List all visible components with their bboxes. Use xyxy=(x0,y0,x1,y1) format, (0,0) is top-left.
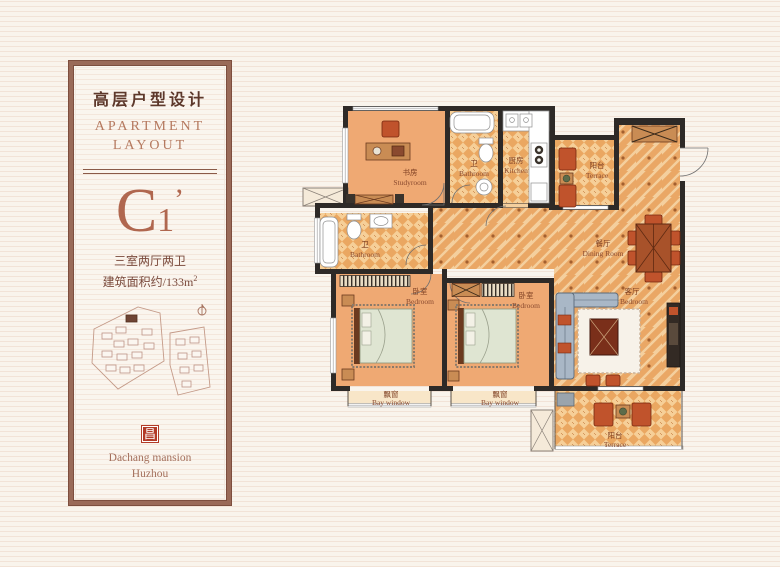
north-arrow-icon xyxy=(198,304,206,315)
label-bedroom2-en: Bedroom xyxy=(512,301,540,310)
kitchen-opening xyxy=(503,204,528,208)
title-english-line2: LAYOUT xyxy=(74,136,226,155)
window-bedroom1-left xyxy=(331,318,337,373)
bed-icon xyxy=(456,305,518,367)
label-bedroom1-en: Bedroom xyxy=(406,297,434,306)
living-terrace-door xyxy=(598,387,643,390)
title-english: APARTMENT LAYOUT xyxy=(74,117,226,155)
label-bath2-en: Bathroom xyxy=(350,250,380,259)
label-study-en: Studyroom xyxy=(393,178,427,187)
terrace-chair-icon xyxy=(632,403,651,426)
developer-name-line1: Dachang mansion xyxy=(109,450,192,466)
floorplan: 书房 Studyroom 卫 Bathroom 厨房 Kitchen 阳台 Te… xyxy=(298,93,713,468)
spec-area-sup: 2 xyxy=(193,274,197,283)
label-kitchen-en: Kitchen xyxy=(504,166,528,175)
washer-icon xyxy=(557,393,574,406)
siteplan-sketch xyxy=(84,299,216,419)
page: 高层户型设计 APARTMENT LAYOUT C1’ 三室两厅两卫 建筑面积约… xyxy=(0,0,780,567)
label-bath1-cn: 卫 xyxy=(470,159,478,168)
label-bedroom1-cn: 卧室 xyxy=(413,286,428,296)
unit-prime: ’ xyxy=(174,185,184,215)
label-bath2-cn: 卫 xyxy=(361,240,369,249)
door-entry xyxy=(680,148,708,176)
window-study-top xyxy=(353,107,438,110)
sink-icon xyxy=(476,179,492,195)
label-bay1-en: Bay window xyxy=(372,398,411,407)
terrace-chair-icon xyxy=(559,148,576,170)
label-study-cn: 书房 xyxy=(403,167,418,177)
wardrobe-icon xyxy=(482,284,514,297)
unit-spec: 三室两厅两卫 建筑面积约/133m2 xyxy=(103,252,198,291)
fridge-icon xyxy=(531,183,547,201)
spec-area-text: 建筑面积约/133m xyxy=(103,275,194,289)
entry-cabinet xyxy=(632,126,677,142)
panel-header: 高层户型设计 APARTMENT LAYOUT xyxy=(74,66,226,155)
developer-logo: 昌 xyxy=(141,425,159,443)
terrace-chair-icon xyxy=(559,185,576,207)
label-terrace1-cn: 阳台 xyxy=(590,160,605,170)
spec-rooms: 三室两厅两卫 xyxy=(103,252,198,270)
unit-type-label: C1’ xyxy=(116,180,184,242)
developer-name: Dachang mansion Huzhou xyxy=(109,450,192,482)
label-bath1-en: Bathroom xyxy=(459,169,489,178)
ac-platform-bottom xyxy=(531,410,553,451)
label-terrace1-en: Terrace xyxy=(586,171,609,180)
label-living-cn: 客厅 xyxy=(625,286,640,296)
spec-area: 建筑面积约/133m2 xyxy=(103,270,198,291)
ottoman-icon xyxy=(606,375,620,386)
nightstand-icon xyxy=(448,371,459,381)
floor-corridor xyxy=(433,208,554,269)
window-bath2-left xyxy=(315,218,321,263)
armchair-icon xyxy=(382,121,399,137)
highlighted-building xyxy=(126,315,137,322)
coffee-table-icon xyxy=(590,319,618,355)
title-chinese: 高层户型设计 xyxy=(74,86,226,110)
label-terrace2-en: Terrace xyxy=(604,440,627,449)
label-living-en: Bedroom xyxy=(620,297,648,306)
developer-city: Huzhou xyxy=(109,466,192,482)
label-dining-en: Dining Room xyxy=(582,249,623,258)
label-terrace2-cn: 阳台 xyxy=(608,430,623,440)
tv-cabinet-icon xyxy=(667,303,680,367)
toilet-icon xyxy=(347,214,361,239)
terrace-chair-icon xyxy=(594,403,613,426)
toilet-icon xyxy=(479,138,493,162)
unit-subscript: 1 xyxy=(157,204,174,238)
label-bay2-en: Bay window xyxy=(481,398,520,407)
speaker-icon xyxy=(346,194,355,203)
speaker-icon xyxy=(395,194,404,203)
bed-icon xyxy=(352,305,414,367)
window-study-left xyxy=(343,128,349,183)
title-english-line1: APARTMENT xyxy=(74,117,226,136)
panel-divider xyxy=(83,169,217,174)
terrace-table-icon xyxy=(616,405,630,418)
nightstand-icon xyxy=(342,369,354,380)
info-panel-frame: 高层户型设计 APARTMENT LAYOUT C1’ 三室两厅两卫 建筑面积约… xyxy=(68,60,232,506)
ottoman-icon xyxy=(586,375,600,386)
plant-icon xyxy=(563,175,570,182)
unit-letter: C xyxy=(116,180,157,242)
info-panel: 高层户型设计 APARTMENT LAYOUT C1’ 三室两厅两卫 建筑面积约… xyxy=(73,65,227,501)
label-kitchen-cn: 厨房 xyxy=(509,155,524,165)
label-bedroom2-cn: 卧室 xyxy=(519,290,534,300)
label-dining-cn: 餐厅 xyxy=(596,239,611,248)
wardrobe-icon xyxy=(340,276,410,287)
sink-icon xyxy=(370,214,392,228)
entry-cabinet-icon xyxy=(452,284,480,297)
stove-icon xyxy=(531,143,547,167)
